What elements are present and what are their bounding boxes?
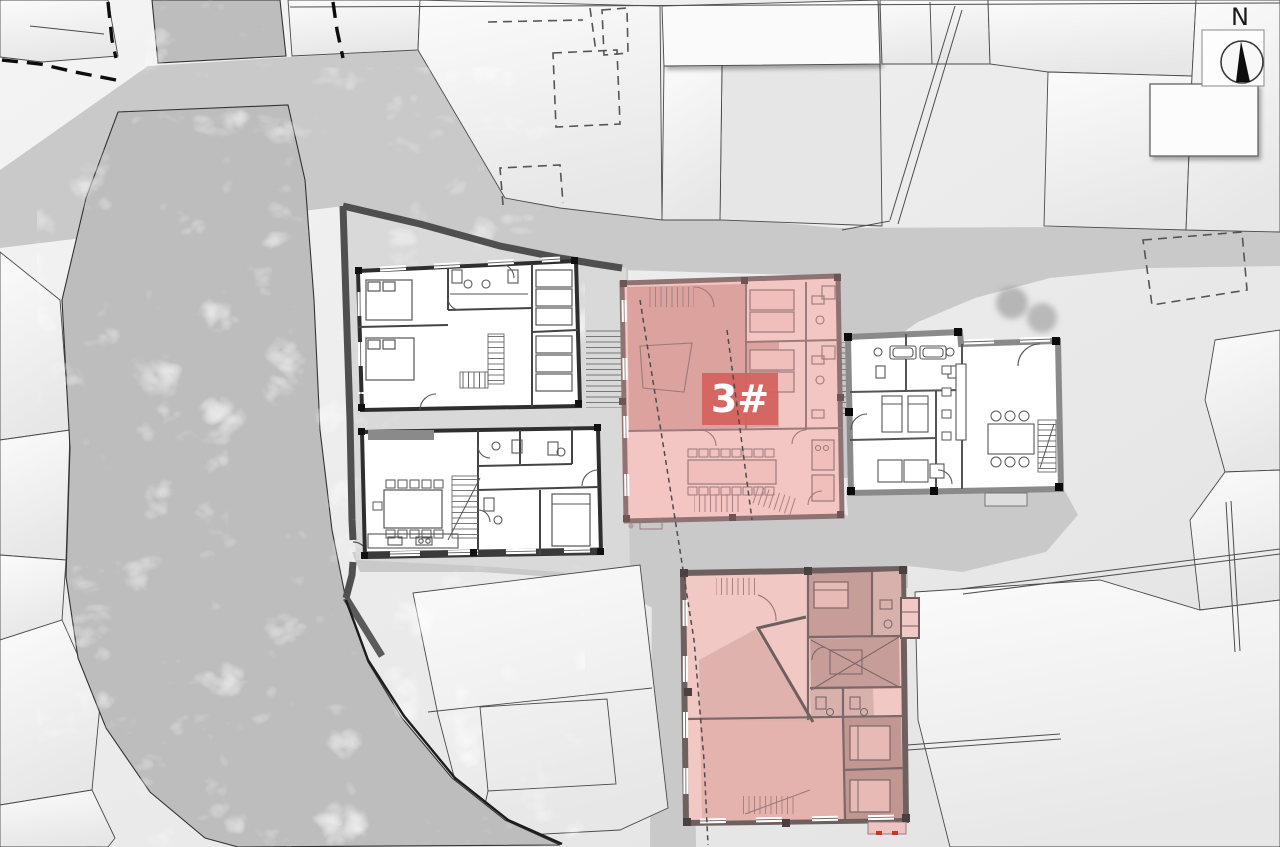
building-annex <box>680 566 919 835</box>
building-upper-left <box>355 257 582 411</box>
building-3: 3# <box>619 274 844 529</box>
building-lower-left <box>358 424 604 559</box>
white-building-block <box>1150 84 1258 156</box>
building-3-badge: 3# <box>702 373 778 425</box>
site-plan-canvas: 3# <box>0 0 1280 847</box>
exterior-steps <box>586 328 624 408</box>
north-label: N <box>1231 3 1249 31</box>
building-right <box>830 328 1063 506</box>
building-3-badge-label: 3# <box>711 377 769 421</box>
